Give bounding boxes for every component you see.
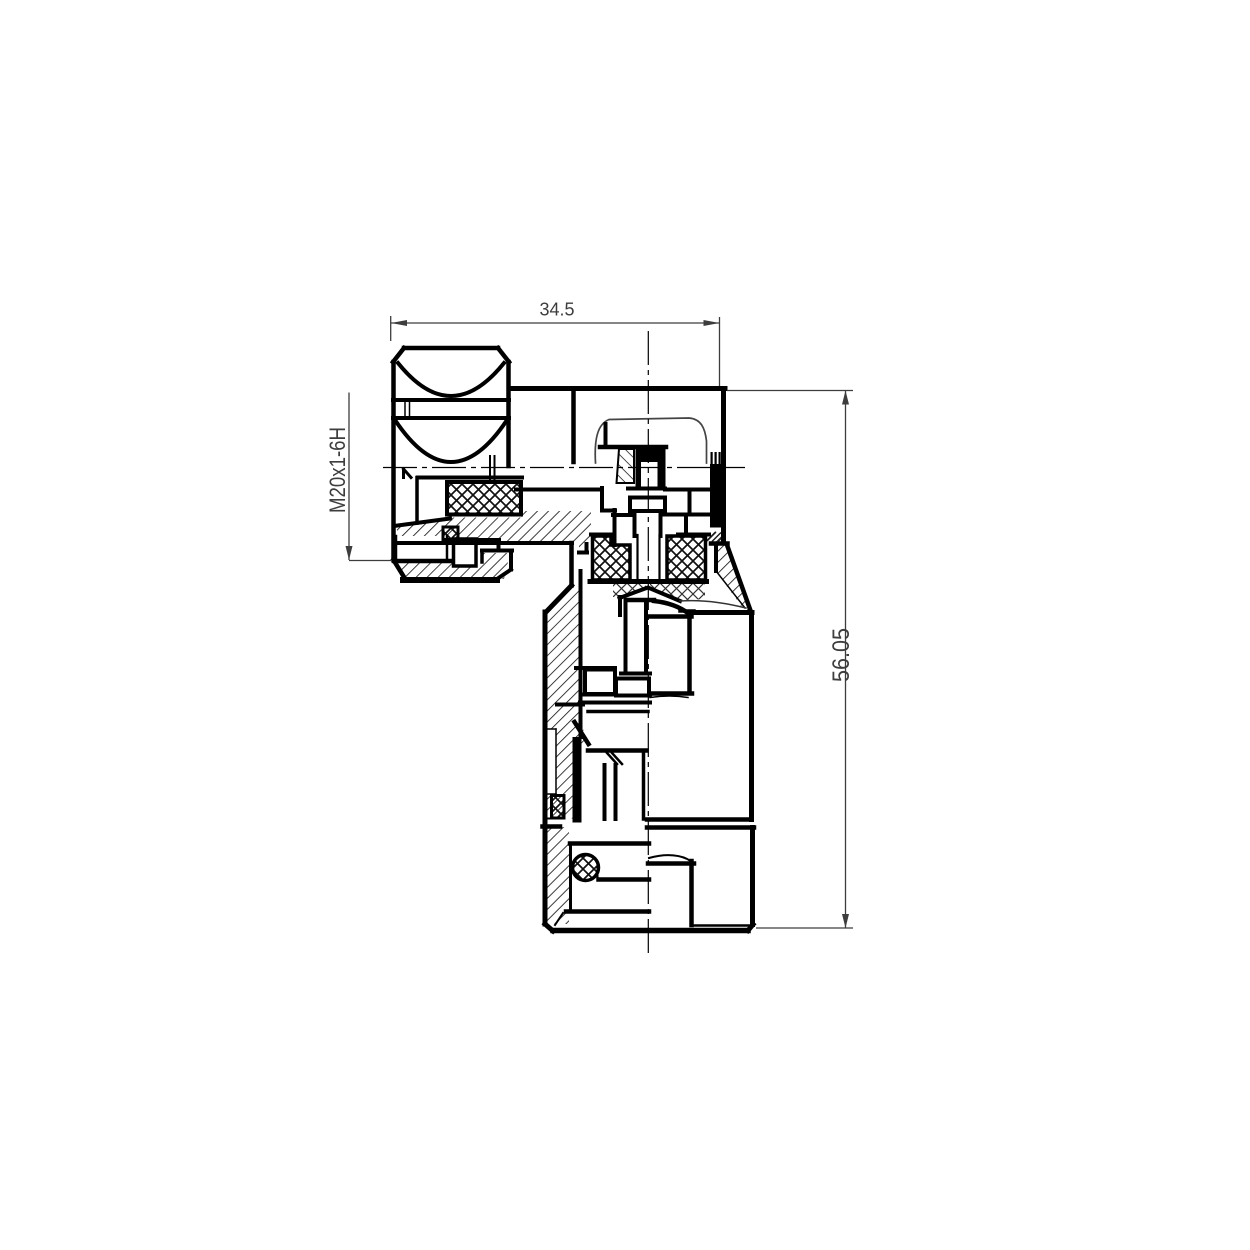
svg-text:34.5: 34.5	[540, 300, 575, 320]
svg-text:56.05: 56.05	[828, 628, 855, 682]
svg-text:M20x1-6H: M20x1-6H	[325, 427, 350, 513]
